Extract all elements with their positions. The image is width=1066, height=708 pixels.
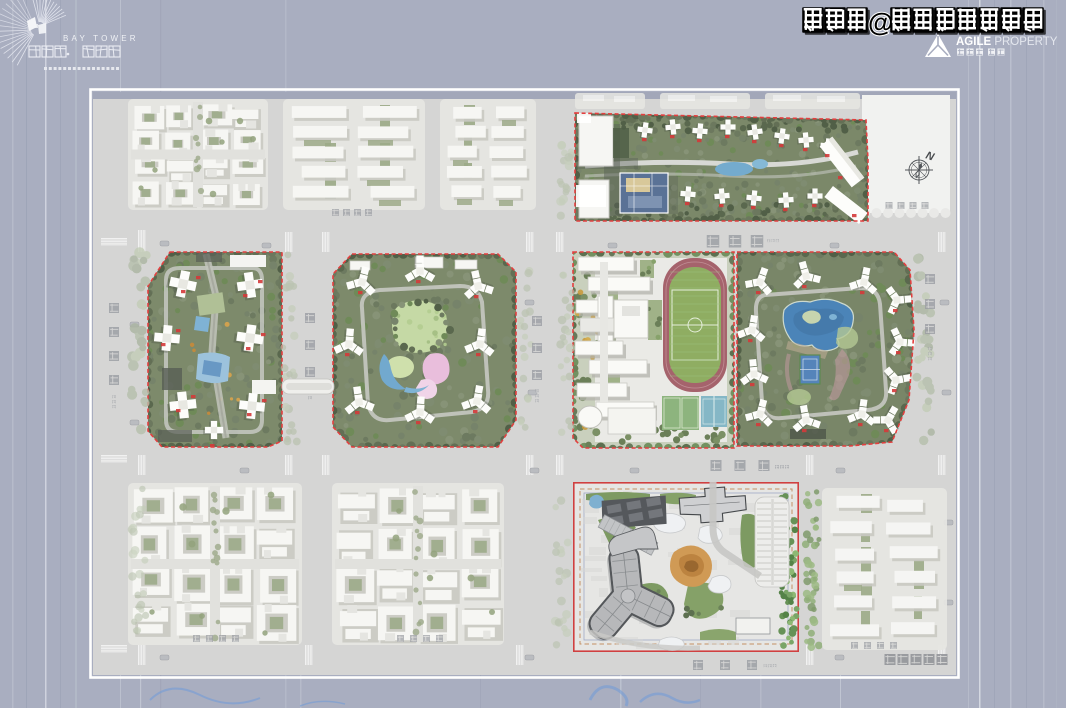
svg-text:@: @	[868, 7, 893, 37]
svg-text:BAY TOWER: BAY TOWER	[63, 34, 139, 43]
svg-text:AGILE PROPERTY: AGILE PROPERTY	[956, 36, 1058, 48]
